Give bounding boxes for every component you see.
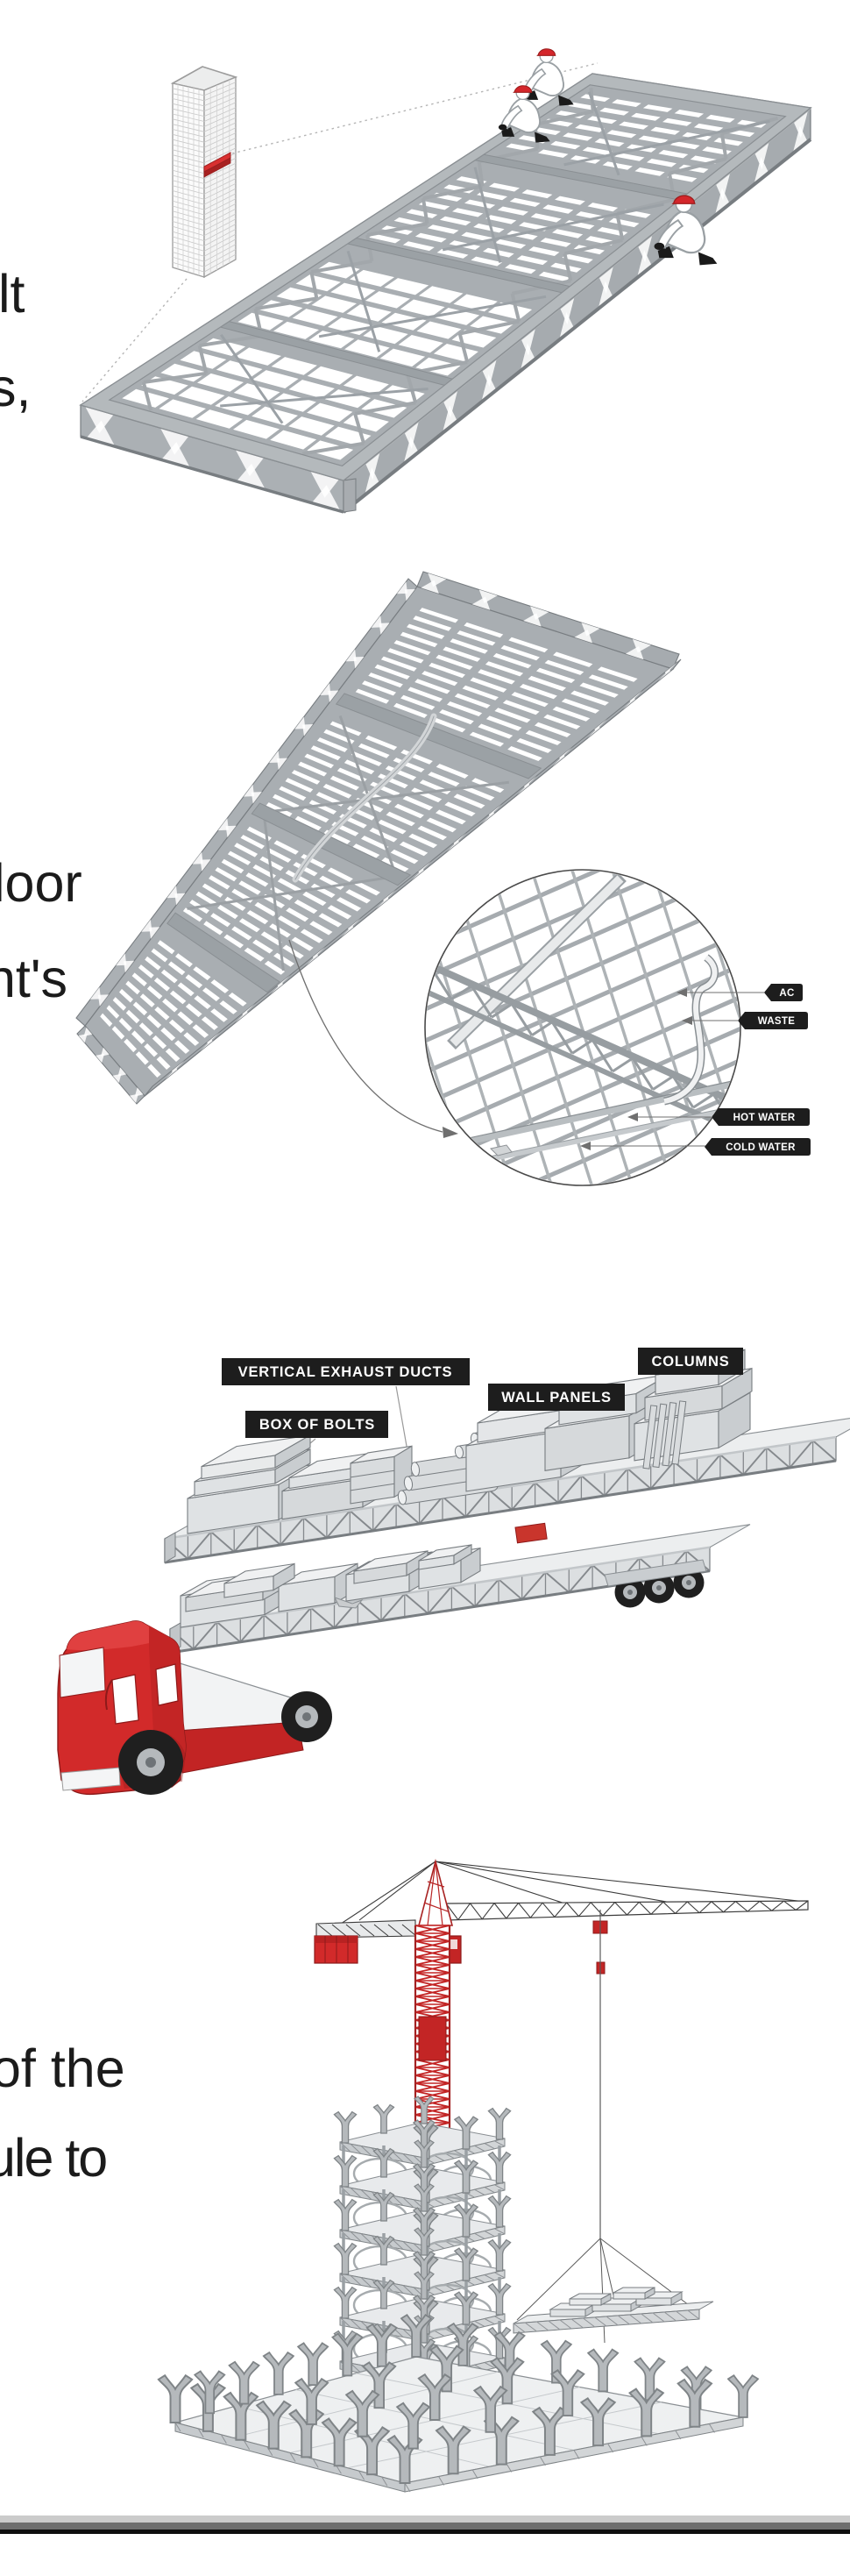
svg-text:WALL PANELS: WALL PANELS xyxy=(501,1390,612,1405)
svg-text:AC: AC xyxy=(779,988,794,999)
svg-text:COLUMNS: COLUMNS xyxy=(651,1354,729,1370)
svg-text:HOT WATER: HOT WATER xyxy=(733,1113,796,1123)
svg-text:BOX OF BOLTS: BOX OF BOLTS xyxy=(259,1417,375,1433)
svg-text:COLD WATER: COLD WATER xyxy=(726,1142,796,1153)
svg-text:VERTICAL EXHAUST DUCTS: VERTICAL EXHAUST DUCTS xyxy=(238,1364,453,1380)
svg-text:WASTE: WASTE xyxy=(758,1016,795,1027)
